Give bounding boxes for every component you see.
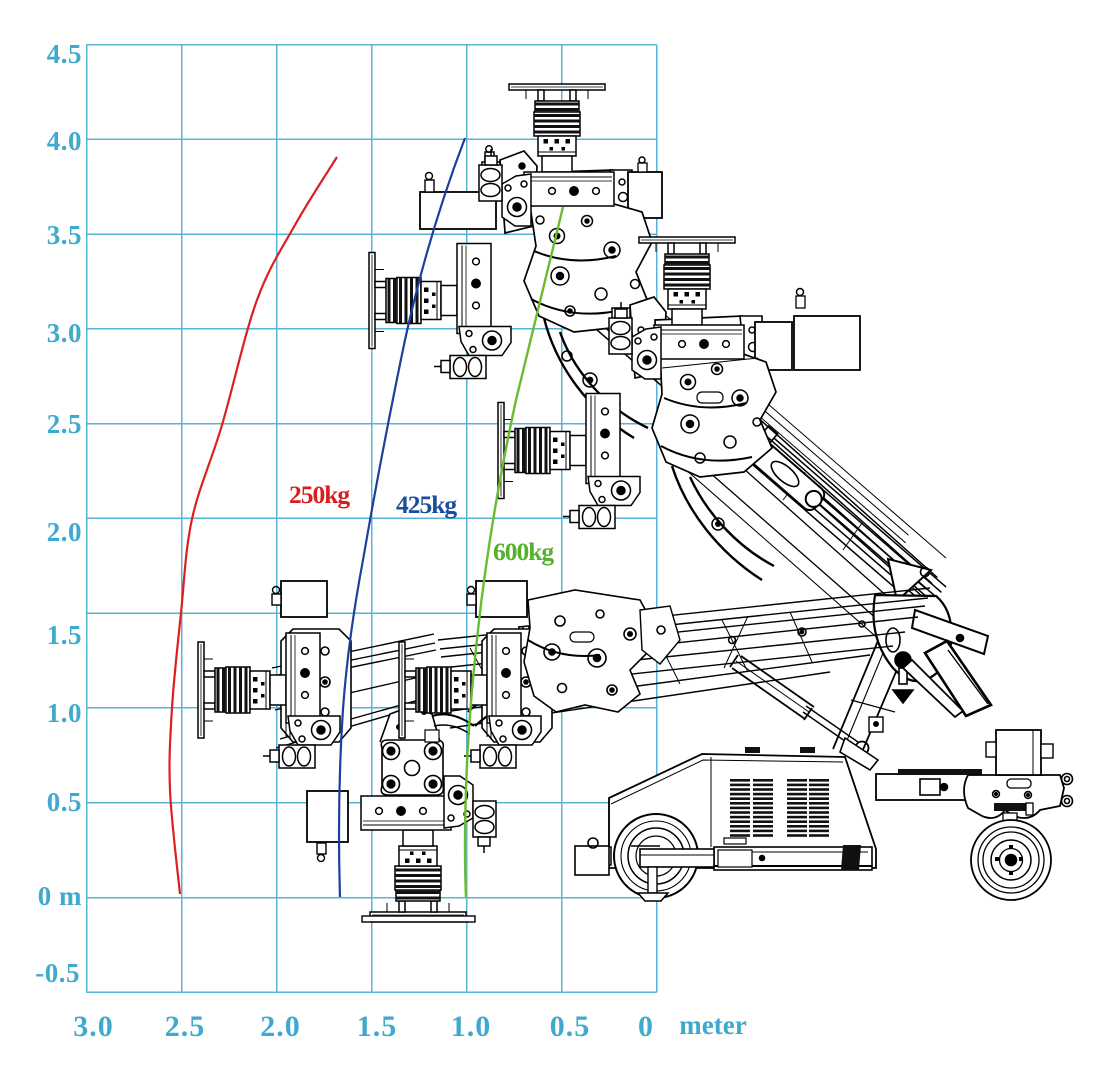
svg-text:3.0: 3.0	[73, 1010, 114, 1043]
svg-text:2.0: 2.0	[260, 1010, 301, 1043]
svg-text:2.5: 2.5	[165, 1010, 206, 1043]
svg-text:1.0: 1.0	[47, 698, 82, 728]
svg-text:meter: meter	[679, 1010, 746, 1040]
svg-text:2.0: 2.0	[47, 517, 82, 547]
svg-text:2.5: 2.5	[47, 409, 82, 439]
svg-text:0.5: 0.5	[47, 787, 82, 817]
svg-text:4.5: 4.5	[47, 39, 82, 69]
svg-text:-0.5: -0.5	[35, 958, 80, 988]
svg-text:1.5: 1.5	[357, 1010, 398, 1043]
svg-text:0.5: 0.5	[550, 1010, 591, 1043]
svg-text:4.0: 4.0	[47, 126, 82, 156]
svg-text:250kg: 250kg	[289, 480, 350, 509]
svg-text:0: 0	[638, 1010, 654, 1043]
svg-text:600kg: 600kg	[493, 537, 554, 566]
svg-text:1.0: 1.0	[451, 1010, 492, 1043]
svg-text:3.5: 3.5	[47, 220, 82, 250]
svg-text:3.0: 3.0	[47, 318, 82, 348]
svg-text:0 m: 0 m	[38, 881, 82, 911]
svg-text:1.5: 1.5	[47, 620, 82, 650]
svg-text:425kg: 425kg	[396, 490, 457, 519]
